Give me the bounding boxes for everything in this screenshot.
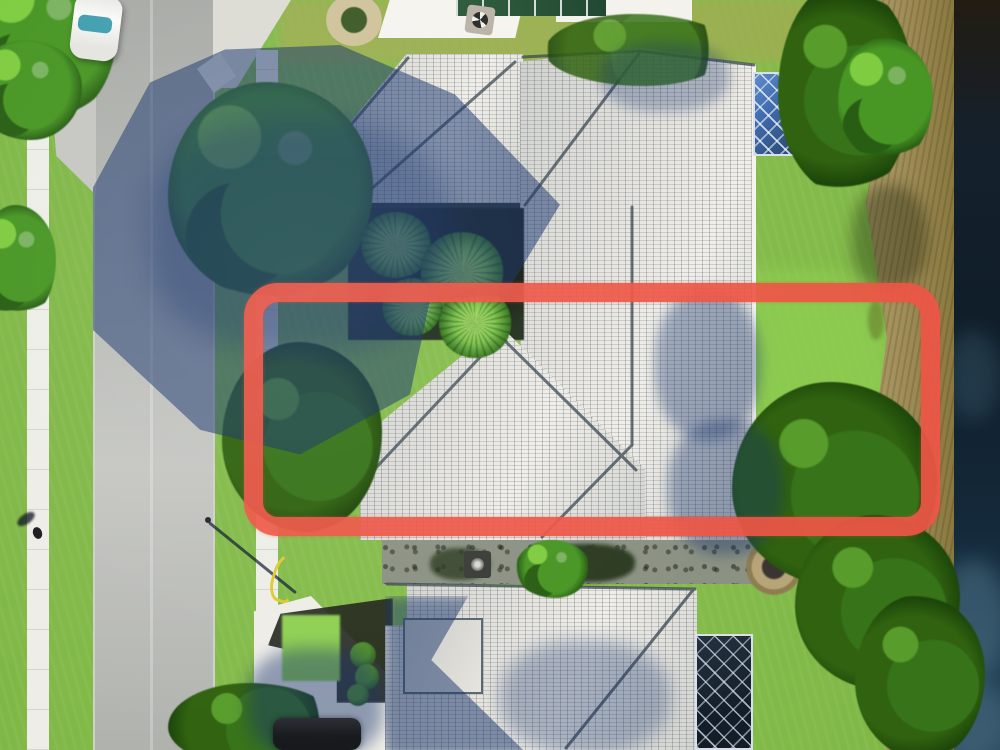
tree-shadow-on-roof <box>600 42 730 112</box>
property-boundary-annotation <box>244 283 940 536</box>
tree <box>515 540 590 598</box>
dark-parked-car <box>273 718 361 750</box>
hedge-row <box>838 38 933 163</box>
shadow-on-bottom-roof <box>500 640 670 750</box>
aerial-photo-scene <box>0 0 1000 750</box>
street-light-pole <box>205 517 211 523</box>
shadow-on-bank <box>852 185 927 290</box>
tree <box>855 595 985 750</box>
